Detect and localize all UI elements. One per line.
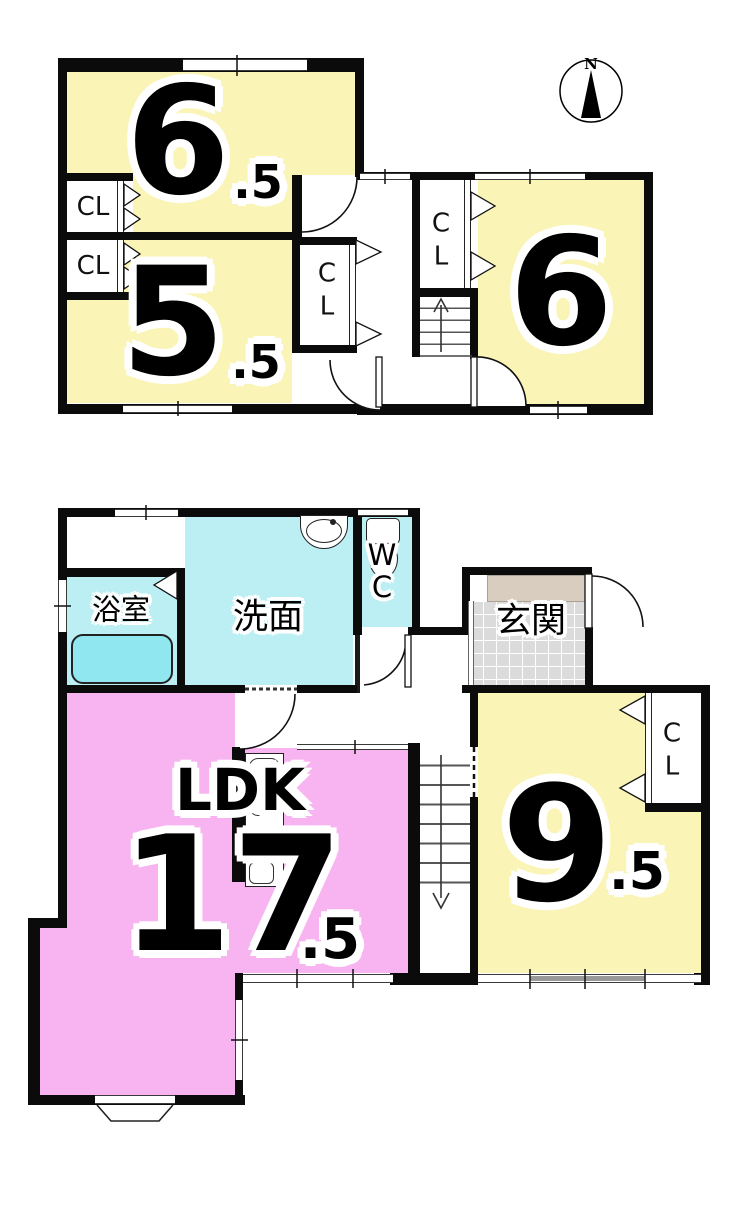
bay-window xyxy=(97,1105,173,1121)
ldk-size-suffix: .5 xyxy=(300,912,360,968)
door-arc xyxy=(240,694,295,749)
compass-n-label: N xyxy=(584,55,598,73)
compass: N xyxy=(560,55,622,122)
closet-label: CL xyxy=(77,253,110,279)
door-arc xyxy=(302,177,357,232)
closet-letter: L xyxy=(434,240,449,273)
closet-letter: C xyxy=(663,718,681,751)
door-leaf xyxy=(471,357,477,407)
bifold-door-icon xyxy=(471,252,495,280)
closet-letter: C xyxy=(432,208,450,241)
room-6-5-size-suffix: .5 xyxy=(233,159,282,205)
door-leaf xyxy=(405,635,411,687)
open-wall xyxy=(470,747,478,797)
room-5-5-size-suffix: .5 xyxy=(231,339,280,385)
door-arc xyxy=(330,360,380,410)
entrance-label: 玄関 xyxy=(496,605,566,640)
closet-letter: C xyxy=(318,258,336,291)
washroom-label: 洗面 xyxy=(233,601,303,636)
room-5-5-size: 5 xyxy=(121,248,225,398)
floor-plan: N 6 .5 5 .5 6 CL CL C L C L 浴室 洗面 W C 玄関… xyxy=(0,0,740,1216)
closet-label: CL xyxy=(77,194,110,220)
bifold-door-icon xyxy=(356,240,381,264)
entrance-door-leaf xyxy=(585,574,592,628)
bifold-door-icon xyxy=(620,774,645,802)
room-9-5-size-suffix: .5 xyxy=(609,846,665,898)
bath-door-icon xyxy=(154,571,177,599)
room-9-5-size: 9 xyxy=(501,765,612,925)
bath-label: 浴室 xyxy=(92,596,150,625)
bifold-door-icon xyxy=(620,696,645,724)
door-arc xyxy=(364,639,406,685)
closet-label-vertical: C L xyxy=(432,208,450,273)
entrance-door-arc xyxy=(592,576,643,627)
room-6-5-size: 6 xyxy=(126,67,230,217)
closet-label-vertical: C L xyxy=(663,718,681,783)
door-leaf xyxy=(376,357,382,407)
room-6-size: 6 xyxy=(509,218,613,368)
bifold-door-icon xyxy=(471,192,495,220)
closet-label-vertical: C L xyxy=(318,258,336,323)
bifold-door-icon xyxy=(356,322,381,346)
wc-letter: C xyxy=(372,572,392,604)
closet-letter: L xyxy=(665,750,680,783)
wc-letter: W xyxy=(368,540,397,572)
closet-letter: L xyxy=(320,290,335,323)
wc-label: W C xyxy=(368,540,397,604)
